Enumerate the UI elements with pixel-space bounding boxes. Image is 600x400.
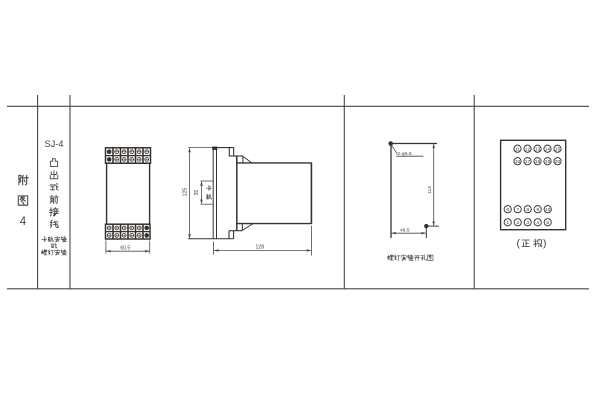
svg-text:14: 14 xyxy=(545,146,551,152)
svg-text:11: 11 xyxy=(515,146,520,152)
svg-text:6: 6 xyxy=(506,207,509,213)
svg-text:19: 19 xyxy=(545,159,551,165)
svg-text:48.5: 48.5 xyxy=(400,228,410,234)
svg-text:9: 9 xyxy=(536,207,539,213)
svg-text:35: 35 xyxy=(194,190,200,196)
svg-text:10: 10 xyxy=(545,207,551,213)
svg-text:): ) xyxy=(543,238,547,250)
svg-text:128: 128 xyxy=(255,244,264,250)
svg-text:2-φ5.5: 2-φ5.5 xyxy=(397,151,412,157)
svg-text:4: 4 xyxy=(20,216,27,228)
svg-text:60.5: 60.5 xyxy=(120,246,130,252)
svg-text:13: 13 xyxy=(535,146,541,152)
svg-text:(: ( xyxy=(517,238,521,250)
svg-text:16: 16 xyxy=(515,159,521,165)
svg-text:3: 3 xyxy=(526,220,529,226)
svg-text:7: 7 xyxy=(516,207,519,213)
svg-text:SJ-4: SJ-4 xyxy=(45,139,64,149)
svg-text:1: 1 xyxy=(506,220,509,226)
svg-text:20: 20 xyxy=(555,159,561,165)
svg-text:8: 8 xyxy=(526,207,529,213)
svg-text:113: 113 xyxy=(427,186,433,194)
svg-text:18: 18 xyxy=(535,159,541,165)
svg-text:17: 17 xyxy=(525,159,531,165)
svg-text:4: 4 xyxy=(536,220,539,226)
svg-text:15: 15 xyxy=(555,146,561,152)
svg-text:12: 12 xyxy=(525,146,531,152)
svg-text:125: 125 xyxy=(183,188,189,197)
svg-text:2: 2 xyxy=(516,220,519,226)
svg-text:5: 5 xyxy=(546,220,549,226)
